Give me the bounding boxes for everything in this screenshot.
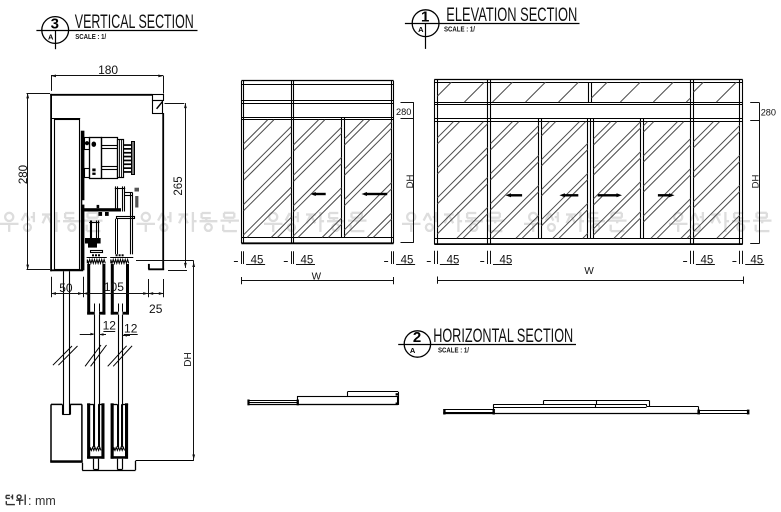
svg-text:12: 12 xyxy=(124,322,138,336)
svg-text:105: 105 xyxy=(104,280,124,294)
svg-text:W: W xyxy=(312,271,322,282)
svg-text:SCALE : 1/: SCALE : 1/ xyxy=(438,348,469,355)
svg-text:DH: DH xyxy=(183,352,194,366)
svg-text:HORIZONTAL SECTION: HORIZONTAL SECTION xyxy=(433,325,573,347)
svg-text:: mm: : mm xyxy=(28,494,56,508)
svg-text:1: 1 xyxy=(421,9,429,26)
svg-text:2: 2 xyxy=(413,329,421,346)
svg-text:280: 280 xyxy=(18,165,30,184)
svg-text:265: 265 xyxy=(173,176,185,195)
svg-text:25: 25 xyxy=(149,302,163,316)
svg-text:SCALE : 1/: SCALE : 1/ xyxy=(444,26,475,33)
svg-text:280: 280 xyxy=(761,108,776,118)
svg-text:A: A xyxy=(48,32,54,41)
svg-text:SCALE : 1/: SCALE : 1/ xyxy=(75,34,106,41)
svg-text:DH: DH xyxy=(751,175,762,189)
svg-text:12: 12 xyxy=(103,319,117,333)
svg-text:280: 280 xyxy=(396,107,411,117)
svg-text:180: 180 xyxy=(98,63,118,77)
svg-text:ELEVATION SECTION: ELEVATION SECTION xyxy=(446,4,577,26)
svg-text:VERTICAL SECTION: VERTICAL SECTION xyxy=(75,11,194,33)
svg-text:A: A xyxy=(418,25,424,34)
svg-text:DH: DH xyxy=(405,175,416,189)
svg-text:A: A xyxy=(410,346,416,355)
svg-text:3: 3 xyxy=(51,15,59,32)
svg-text:50: 50 xyxy=(59,281,73,295)
svg-text:W: W xyxy=(584,266,594,277)
